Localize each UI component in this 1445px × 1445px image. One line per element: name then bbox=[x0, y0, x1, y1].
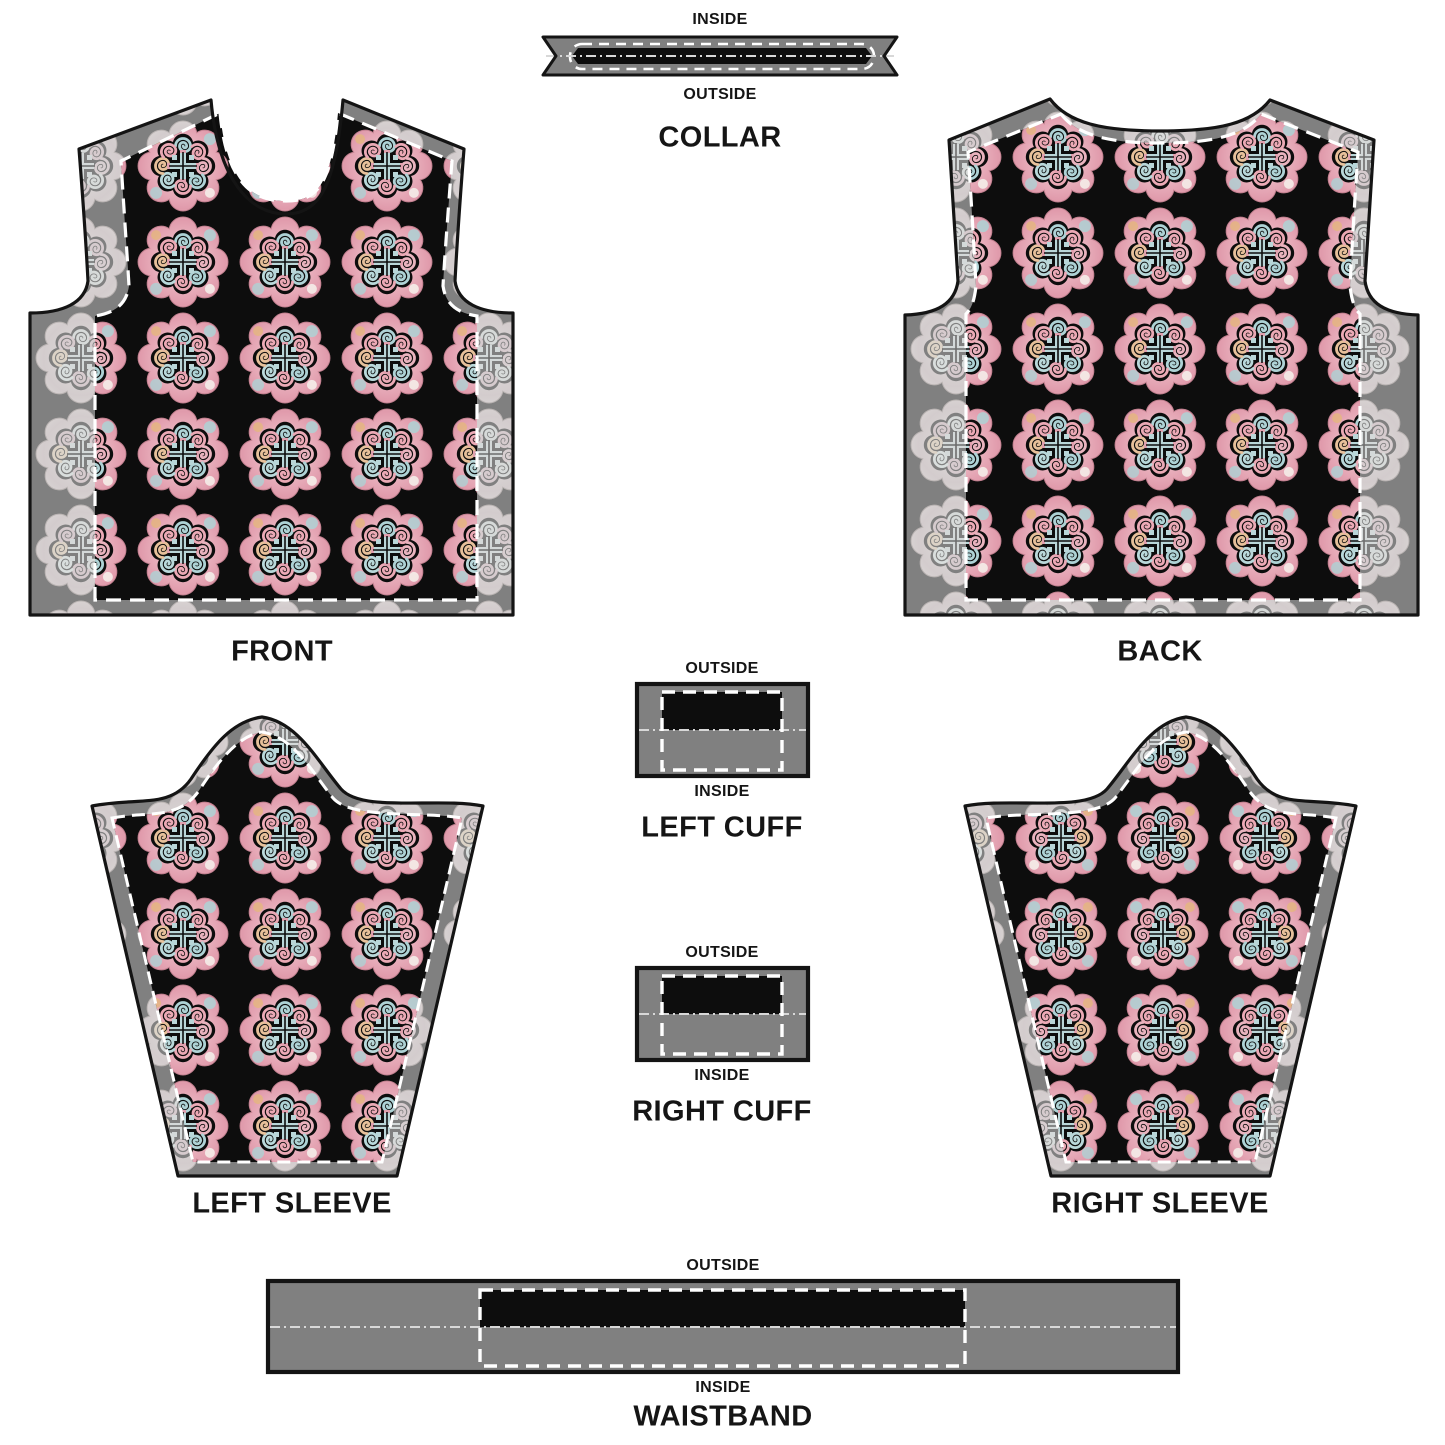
back-print-motifs bbox=[898, 90, 1426, 622]
right-cuff-piece bbox=[637, 968, 808, 1060]
right-cuff-inside-label: INSIDE bbox=[694, 1068, 749, 1084]
right-sleeve-piece bbox=[958, 710, 1363, 1182]
waistband-title: WAISTBAND bbox=[633, 1403, 812, 1432]
waistband-inside-label: INSIDE bbox=[695, 1380, 750, 1396]
right-sleeve-title: RIGHT SLEEVE bbox=[1051, 1190, 1269, 1219]
right-cuff-outside-label: OUTSIDE bbox=[685, 945, 758, 961]
back-piece bbox=[898, 90, 1426, 622]
collar-piece bbox=[543, 37, 897, 75]
left-cuff-outside-label: OUTSIDE bbox=[685, 661, 758, 677]
right-cuff-title: RIGHT CUFF bbox=[632, 1098, 812, 1127]
collar-outside-label: OUTSIDE bbox=[683, 87, 756, 103]
waistband-outside-label: OUTSIDE bbox=[686, 1258, 759, 1274]
pattern-sheet: INSIDE OUTSIDE COLLAR FRONT BACK OUTSIDE… bbox=[0, 0, 1445, 1445]
collar-inside-label: INSIDE bbox=[692, 12, 747, 28]
left-sleeve-title: LEFT SLEEVE bbox=[192, 1190, 391, 1219]
left-sleeve-piece bbox=[85, 710, 490, 1182]
front-piece bbox=[22, 88, 522, 623]
waistband-piece bbox=[268, 1281, 1178, 1372]
left-cuff-inside-label: INSIDE bbox=[694, 784, 749, 800]
left-cuff-title: LEFT CUFF bbox=[641, 814, 802, 843]
sleeve-print-motifs bbox=[85, 710, 490, 1182]
collar-title: COLLAR bbox=[658, 124, 781, 153]
cuff-print-area bbox=[662, 692, 782, 730]
front-title: FRONT bbox=[231, 638, 333, 667]
pattern-canvas bbox=[0, 0, 1445, 1445]
waistband-print-area bbox=[480, 1290, 965, 1327]
back-title: BACK bbox=[1117, 638, 1202, 667]
left-cuff-piece bbox=[637, 684, 808, 776]
